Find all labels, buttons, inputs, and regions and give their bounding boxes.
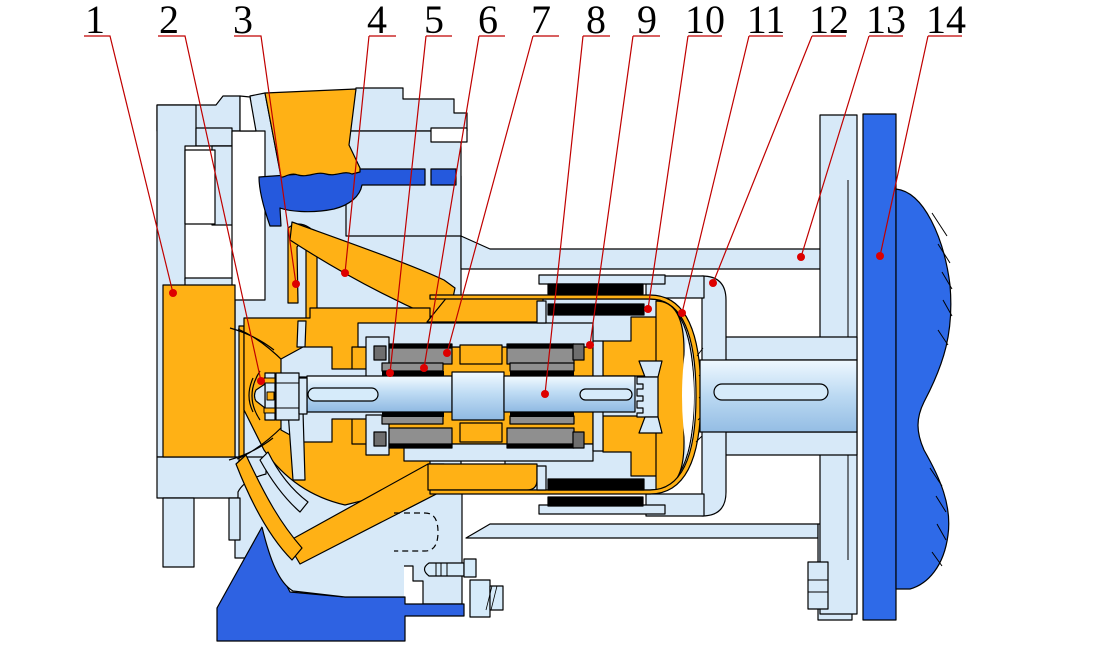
svg-text:1: 1: [85, 0, 105, 42]
svg-text:4: 4: [367, 0, 387, 42]
svg-text:8: 8: [586, 0, 606, 42]
svg-text:13: 13: [866, 0, 906, 42]
svg-text:5: 5: [424, 0, 444, 42]
svg-text:6: 6: [478, 0, 498, 42]
svg-text:9: 9: [637, 0, 657, 42]
svg-text:12: 12: [809, 0, 849, 42]
svg-text:11: 11: [747, 0, 786, 42]
svg-text:10: 10: [685, 0, 725, 42]
svg-text:2: 2: [159, 0, 179, 42]
svg-text:14: 14: [926, 0, 966, 42]
svg-text:7: 7: [531, 0, 551, 42]
svg-text:3: 3: [233, 0, 253, 42]
